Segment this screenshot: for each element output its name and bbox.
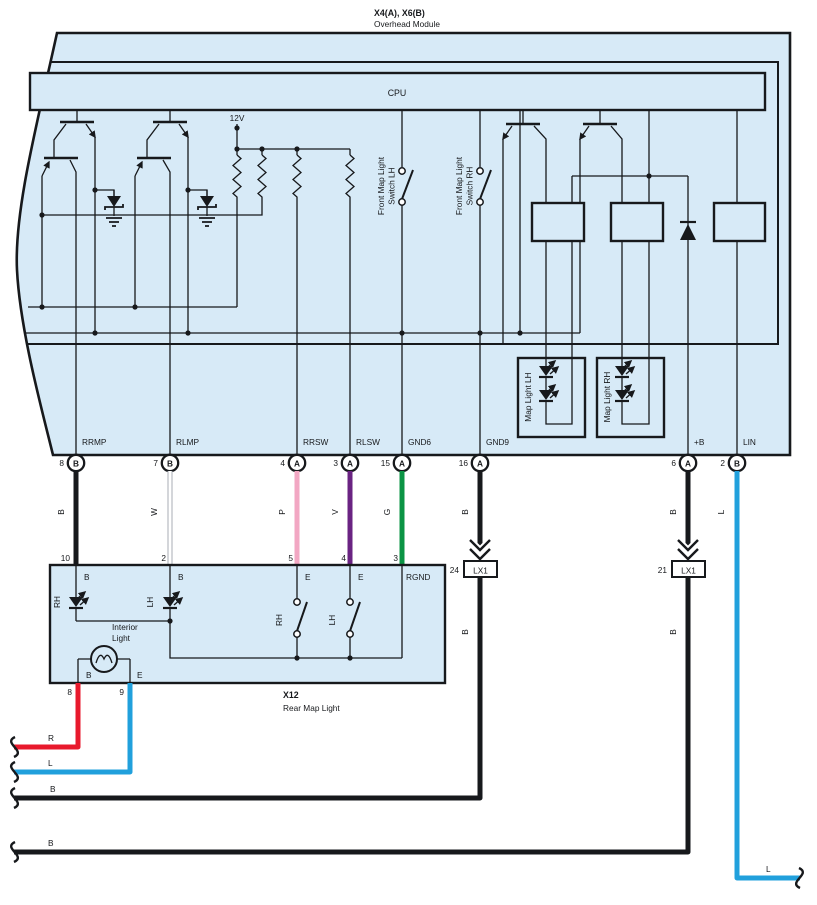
wire-code-plusb: B (668, 509, 678, 515)
wire-code-plusb-lower: B (668, 629, 678, 635)
wire-code-rlsw: V (330, 509, 340, 515)
front-switch-lh-label1: Front Map Light (376, 156, 386, 215)
pin-num: 7 (153, 458, 158, 468)
pin-name-rlmp: RLMP (176, 437, 200, 447)
pin-num: 3 (333, 458, 338, 468)
bottom-wire-r-label: R (48, 733, 54, 743)
cpu-label: CPU (388, 88, 407, 98)
x12-pin9-num: 9 (119, 687, 124, 697)
lx1-24-number: 24 (450, 565, 460, 575)
pin-num: 6 (671, 458, 676, 468)
wire-blue-l (14, 683, 130, 772)
module-title-line1: X4(A), X6(B) (374, 8, 425, 18)
pin-gnd6: 15 A (381, 455, 410, 471)
lx1-24-label: LX1 (473, 566, 488, 576)
pin-num: 16 (459, 458, 469, 468)
x12-pin3-num: 3 (393, 553, 398, 563)
pin-rrsw: 4 A (280, 455, 305, 471)
pin-lin: 2 B (720, 455, 745, 471)
x12-led-lh-label: LH (145, 597, 155, 608)
ic-block-2 (611, 203, 663, 241)
lx1-connector-21: 21 LX1 (658, 540, 705, 577)
map-light-lh-label: Map Light LH (523, 372, 533, 421)
pin-num: 4 (280, 458, 285, 468)
rear-map-light-x12: 10 2 5 4 3 B B E E RGND RH LH RH (50, 553, 445, 713)
x12-pin8-label: B (86, 670, 92, 680)
x12-pin10-num: 10 (61, 553, 71, 563)
pin-name-lin: LIN (743, 437, 756, 447)
wire-code-lin: L (716, 509, 726, 514)
x12-pin5-label: E (305, 572, 311, 582)
x12-pin4-label: E (358, 572, 364, 582)
interior-light-label2: Light (112, 633, 131, 643)
pin-conn: A (399, 459, 405, 469)
overhead-module: CPU 12V (17, 33, 790, 455)
pin-gnd9: 16 A (459, 455, 488, 471)
map-light-rh-label: Map Light RH (602, 372, 612, 423)
ic-block-3 (714, 203, 765, 241)
front-switch-rh-label1: Front Map Light (454, 156, 464, 215)
x12-pin8-num: 8 (67, 687, 72, 697)
pin-conn: A (477, 459, 483, 469)
x12-pin3-label: RGND (406, 572, 430, 582)
connector-pins: 8 B 7 B 4 A 3 A 15 A 16 A (59, 455, 745, 471)
pin-rrmp: 8 B (59, 455, 84, 471)
wire-code-rrmp: B (56, 509, 66, 515)
wiring-diagram: X4(A), X6(B) Overhead Module CPU (0, 0, 817, 900)
pin-name-rrmp: RRMP (82, 437, 107, 447)
pin-rlsw: 3 A (333, 455, 358, 471)
pin-name-plusb: +B (694, 437, 705, 447)
pin-name-rrsw: RRSW (303, 437, 329, 447)
x12-pin2-num: 2 (161, 553, 166, 563)
pin-conn: A (294, 459, 300, 469)
module-title: X4(A), X6(B) Overhead Module (374, 8, 440, 29)
map-light-rh: Map Light RH (597, 358, 664, 437)
lx1-21-number: 21 (658, 565, 668, 575)
x12-name: Rear Map Light (283, 703, 340, 713)
pin-rlmp: 7 B (153, 455, 178, 471)
pin-name-gnd6: GND6 (408, 437, 431, 447)
map-light-lh: Map Light LH (518, 358, 585, 437)
x12-led-rh-label: RH (52, 596, 62, 608)
supply-12v-label: 12V (230, 113, 245, 123)
pin-num: 15 (381, 458, 391, 468)
x12-pin2-label: B (178, 572, 184, 582)
wire-code-rrsw: P (277, 509, 287, 515)
x12-switch-rh-label: RH (274, 614, 284, 626)
interior-light-label1: Interior (112, 622, 138, 632)
bottom-wire-lin-label: L (766, 864, 771, 874)
x12-pin5-num: 5 (288, 553, 293, 563)
pin-conn: A (347, 459, 353, 469)
ic-block-1 (532, 203, 584, 241)
lx1-connector-24: 24 LX1 (450, 540, 497, 577)
wire-lin-blue (737, 471, 800, 878)
front-switch-lh-label2: Switch LH (387, 167, 397, 204)
bottom-wire-l-label: L (48, 758, 53, 768)
pin-num: 8 (59, 458, 64, 468)
x12-pin4-num: 4 (341, 553, 346, 563)
x12-switch-lh-label: LH (327, 615, 337, 626)
wire-code-gnd9: B (460, 509, 470, 515)
pin-conn: B (734, 459, 740, 469)
x12-pin9-label: E (137, 670, 143, 680)
wire-code-rlmp: W (149, 508, 159, 516)
pin-name-rlsw: RLSW (356, 437, 380, 447)
pin-conn: B (167, 459, 173, 469)
lower-harness: R L B B L (11, 683, 803, 888)
front-switch-rh-label2: Switch RH (465, 167, 475, 206)
lx1-21-label: LX1 (681, 566, 696, 576)
pin-num: 2 (720, 458, 725, 468)
bottom-wire-b2-label: B (48, 838, 54, 848)
schematic-svg: X4(A), X6(B) Overhead Module CPU (0, 0, 817, 900)
pin-conn: B (73, 459, 79, 469)
pin-name-gnd9: GND9 (486, 437, 509, 447)
x12-pin10-label: B (84, 572, 90, 582)
wire-code-gnd6: G (382, 509, 392, 515)
x12-id: X12 (283, 690, 299, 700)
bottom-wire-b1-label: B (50, 784, 56, 794)
pin-conn: A (685, 459, 691, 469)
module-title-line2: Overhead Module (374, 19, 440, 29)
wire-code-gnd9-lower: B (460, 629, 470, 635)
pin-plusb: 6 A (671, 455, 696, 471)
